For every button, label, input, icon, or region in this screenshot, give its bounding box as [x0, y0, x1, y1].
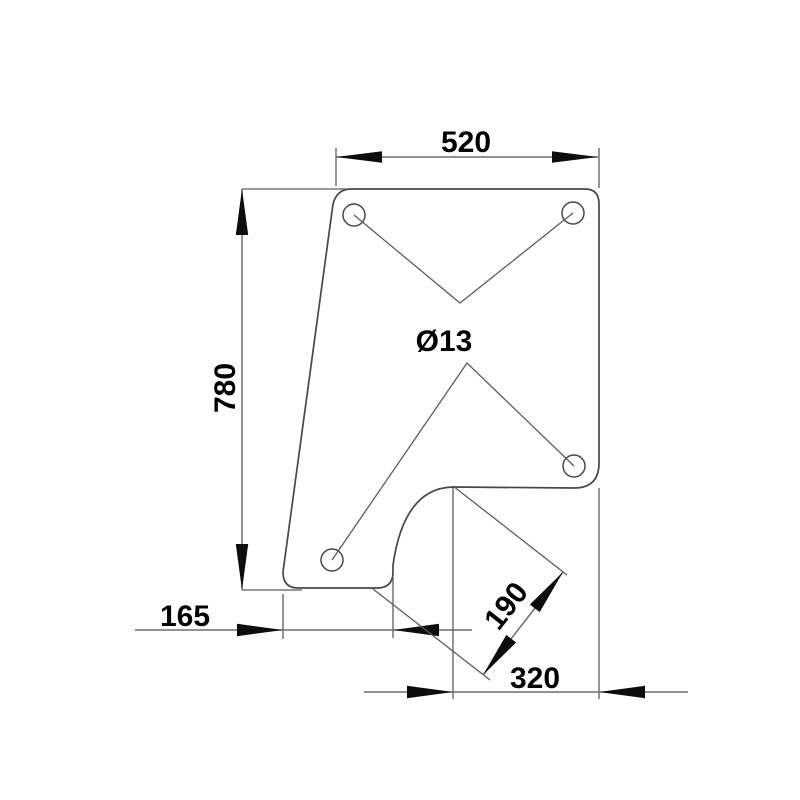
- dim-label-190: 190: [478, 576, 535, 636]
- plate-outline: [283, 189, 599, 588]
- arrow-190-upper: [530, 572, 563, 612]
- dim-label-520: 520: [441, 126, 491, 159]
- hole-diameter-label: Ø13: [416, 325, 473, 358]
- technical-drawing: Ø13 520 780 165: [0, 0, 800, 800]
- dim-label-320: 320: [510, 662, 560, 695]
- drawing-page: Ø13 520 780 165: [0, 0, 800, 800]
- dimension-top-width: 520: [336, 126, 599, 188]
- plate: [283, 189, 599, 588]
- arrow-780-bottom: [236, 544, 248, 590]
- dim-label-780: 780: [209, 363, 242, 413]
- ext-line-190-upper: [453, 486, 567, 575]
- dimension-bottom-left-offset: 165: [135, 577, 472, 639]
- dim-label-165: 165: [160, 600, 210, 633]
- arrow-520-left: [336, 151, 382, 163]
- arrow-320-right: [599, 686, 645, 698]
- leader-top-holes: [354, 213, 573, 303]
- arrow-520-right: [552, 151, 598, 163]
- arrow-780-top: [236, 189, 248, 235]
- arrow-320-left: [407, 686, 453, 698]
- arrow-165-left: [237, 624, 283, 636]
- ext-line-190-lower: [373, 589, 490, 680]
- dimension-notch-diagonal: 190: [373, 486, 567, 680]
